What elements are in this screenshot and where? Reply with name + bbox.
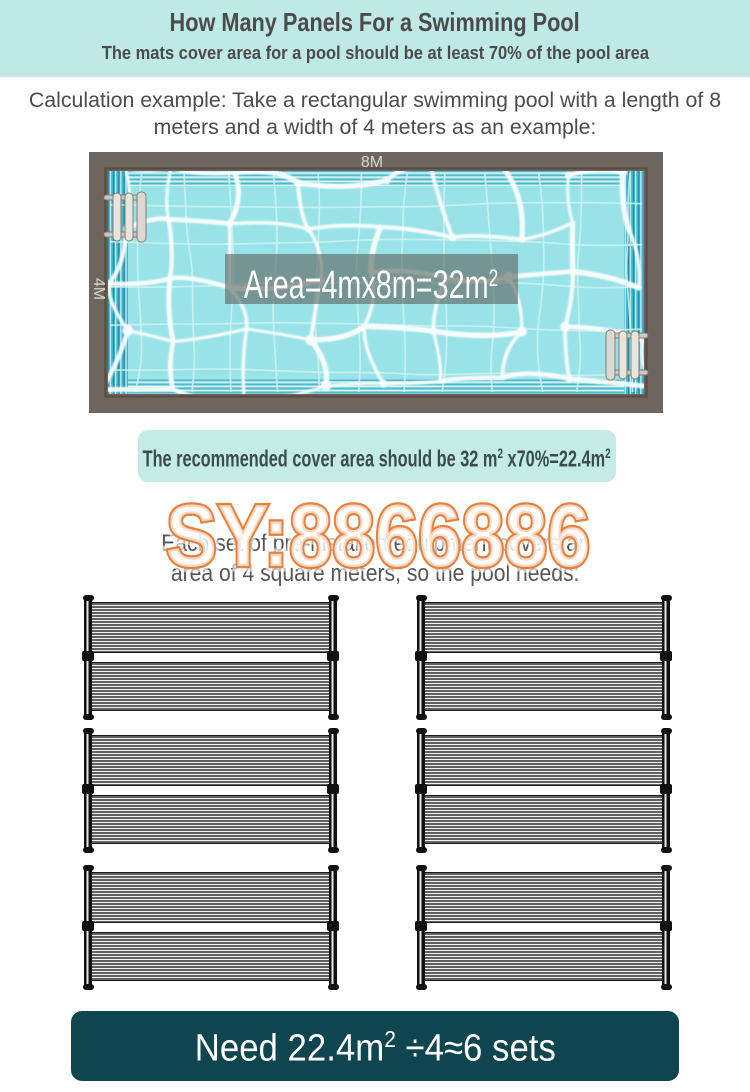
svg-text:4M: 4M bbox=[90, 278, 107, 300]
svg-text:8M: 8M bbox=[361, 154, 383, 171]
svg-text:SY:8866886: SY:8866886 bbox=[166, 486, 591, 585]
svg-text:Area=4mx8m=32m2: Area=4mx8m=32m2 bbox=[244, 262, 498, 307]
